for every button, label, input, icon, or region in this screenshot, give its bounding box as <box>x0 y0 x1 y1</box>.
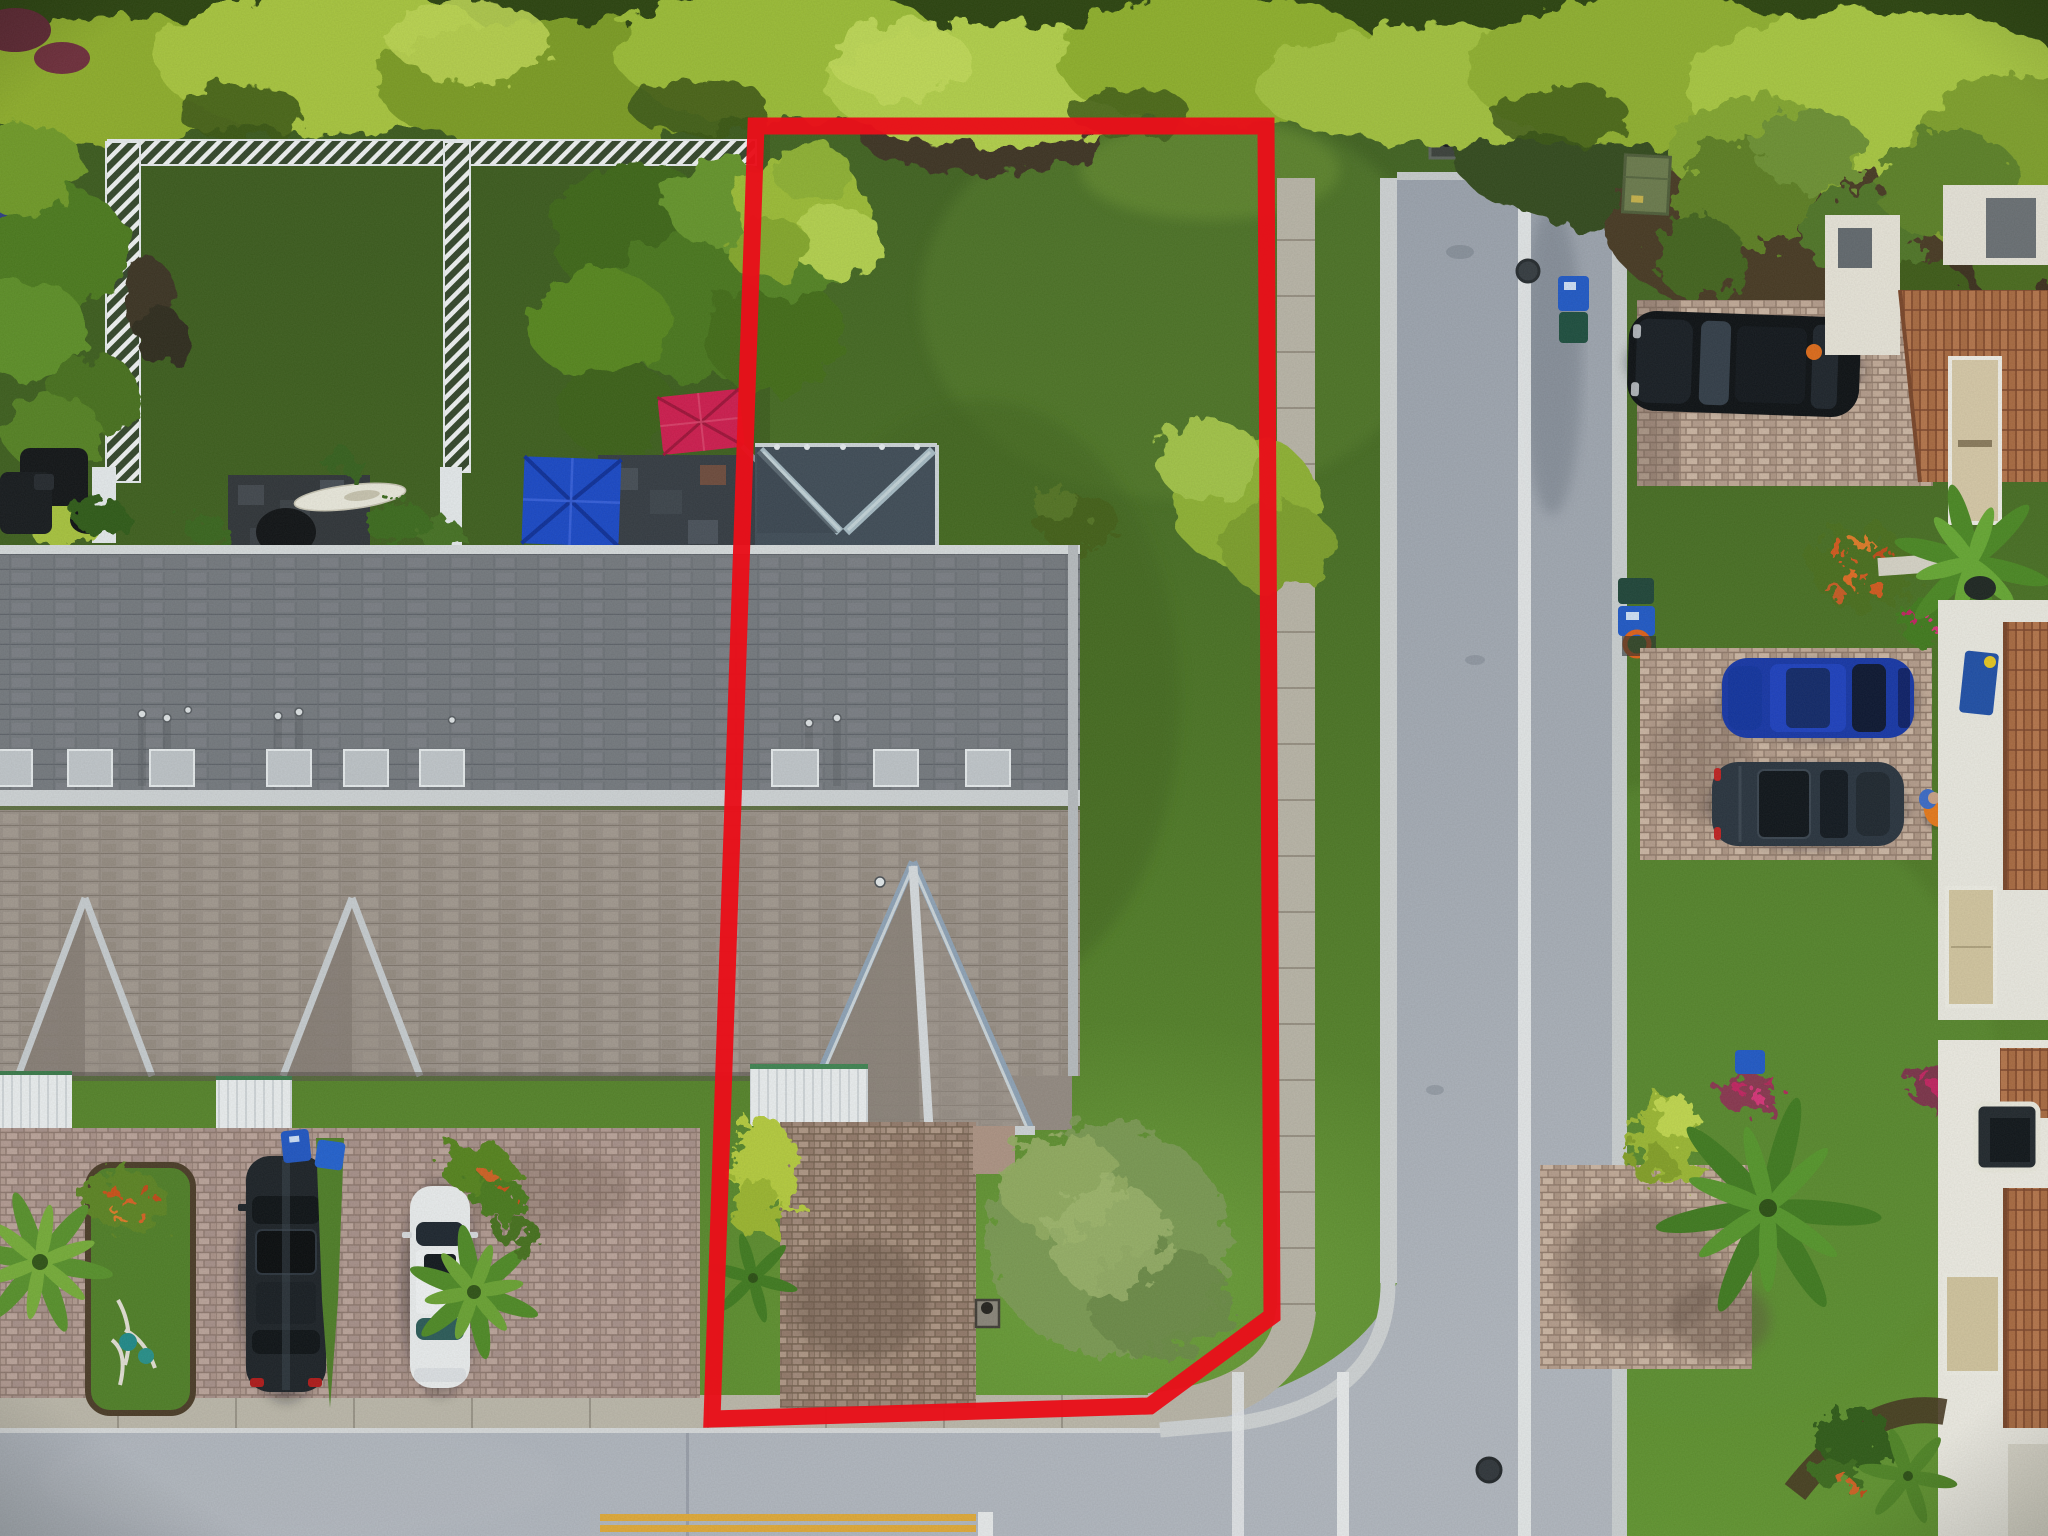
vignette <box>0 0 2048 1536</box>
aerial-photo <box>0 0 2048 1536</box>
aerial-photo-stage <box>0 0 2048 1536</box>
